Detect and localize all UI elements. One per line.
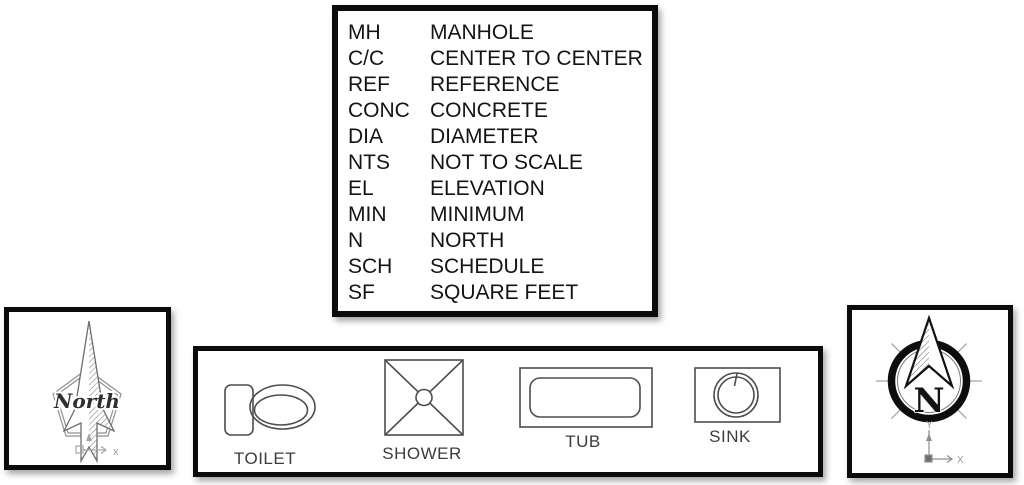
compass-symbol-box: N Y X <box>847 305 1013 478</box>
north-symbol-box: North x <box>4 307 171 470</box>
fixtures-legend-box: TOILET SHOWER TUB SINK <box>193 346 823 477</box>
drawing-sheet: MHMANHOLEC/CCENTER TO CENTERREFREFERENCE… <box>0 0 1024 485</box>
y-axis-label: Y <box>926 420 933 431</box>
toilet-label: TOILET <box>234 449 296 468</box>
legend-row: CONCCONCRETE <box>348 98 652 124</box>
abbr-code: N <box>348 228 430 254</box>
toilet-icon <box>225 385 315 435</box>
abbr-code: EL <box>348 176 430 202</box>
abbr-definition: MINIMUM <box>430 203 524 226</box>
legend-row: MHMANHOLE <box>348 20 652 46</box>
legend-row: NTSNOT TO SCALE <box>348 150 652 176</box>
abbr-definition: DIAMETER <box>430 125 539 148</box>
abbr-code: REF <box>348 72 430 98</box>
ucs-axis-icon <box>925 430 952 463</box>
abbr-definition: CENTER TO CENTER <box>430 47 643 70</box>
abbr-definition: CONCRETE <box>430 99 548 122</box>
abbr-definition: MANHOLE <box>430 21 534 44</box>
tub-icon <box>520 368 652 427</box>
legend-row: ELELEVATION <box>348 176 652 202</box>
abbr-definition: SQUARE FEET <box>430 281 578 304</box>
x-axis-label: x <box>113 446 119 458</box>
north-arrow-pentagon-icon: North x <box>9 312 166 465</box>
abbr-code: NTS <box>348 150 430 176</box>
compass-north-arrow-icon: N Y X <box>852 310 1008 473</box>
abbr-definition: NORTH <box>430 229 504 252</box>
abbr-code: MH <box>348 20 430 46</box>
legend-row: SFSQUARE FEET <box>348 280 652 306</box>
abbreviation-legend-box: MHMANHOLEC/CCENTER TO CENTERREFREFERENCE… <box>332 5 658 317</box>
tub-label: TUB <box>565 432 601 451</box>
legend-row: C/CCENTER TO CENTER <box>348 46 652 72</box>
shower-label: SHOWER <box>382 444 462 463</box>
abbr-code: SF <box>348 280 430 306</box>
fixtures-symbols: TOILET SHOWER TUB SINK <box>198 351 818 472</box>
shower-icon <box>385 360 463 435</box>
abbr-code: SCH <box>348 254 430 280</box>
sink-label: SINK <box>709 427 751 446</box>
abbr-definition: REFERENCE <box>430 73 560 96</box>
legend-row: DIADIAMETER <box>348 124 652 150</box>
north-label: North <box>53 389 120 413</box>
abbr-code: CONC <box>348 98 430 124</box>
abbr-code: DIA <box>348 124 430 150</box>
abbreviation-list: MHMANHOLEC/CCENTER TO CENTERREFREFERENCE… <box>338 11 652 306</box>
abbr-definition: ELEVATION <box>430 177 545 200</box>
abbr-code: C/C <box>348 46 430 72</box>
abbr-code: MIN <box>348 202 430 228</box>
legend-row: REFREFERENCE <box>348 72 652 98</box>
compass-n-label: N <box>913 381 944 421</box>
abbr-definition: SCHEDULE <box>430 255 544 278</box>
abbr-definition: NOT TO SCALE <box>430 151 583 174</box>
legend-row: SCHSCHEDULE <box>348 254 652 280</box>
sink-icon <box>695 368 780 422</box>
x-axis-label: X <box>957 455 964 466</box>
legend-row: MINMINIMUM <box>348 202 652 228</box>
legend-row: NNORTH <box>348 228 652 254</box>
